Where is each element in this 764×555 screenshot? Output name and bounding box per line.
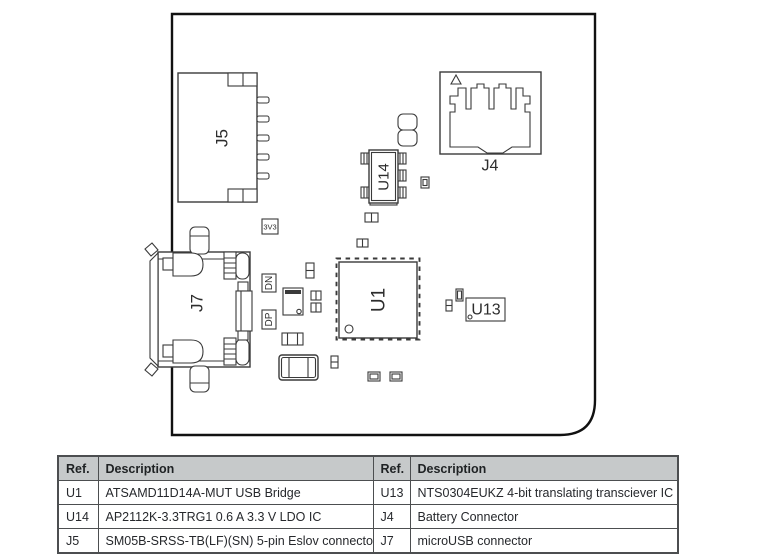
component-cap-pads xyxy=(398,114,417,146)
label-j7: J7 xyxy=(188,294,207,312)
table-row: U14 AP2112K-3.3TRG1 0.6 A 3.3 V LDO IC J… xyxy=(58,505,678,529)
label-j4: J4 xyxy=(482,158,499,175)
cell-desc: NTS0304EUKZ 4-bit translating transcieve… xyxy=(410,481,678,505)
j7-tab-top xyxy=(190,227,209,254)
j5-pin xyxy=(257,116,269,122)
header-desc-right: Description xyxy=(410,456,678,481)
j5-pin xyxy=(257,154,269,160)
pcb-diagram: J5 xyxy=(0,0,764,450)
header-desc-left: Description xyxy=(98,456,373,481)
net-label-dn: DN xyxy=(262,274,276,292)
j5-pin xyxy=(257,135,269,141)
header-ref-right: Ref. xyxy=(373,456,410,481)
label-j5: J5 xyxy=(213,129,232,147)
component-u1: U1 xyxy=(337,259,420,340)
cell-desc: ATSAMD11D14A-MUT USB Bridge xyxy=(98,481,373,505)
cell-ref: U1 xyxy=(58,481,98,505)
label-u14: U14 xyxy=(376,163,393,191)
cell-ref: J7 xyxy=(373,529,410,554)
cell-desc: microUSB connector xyxy=(410,529,678,554)
u1-pin1-mark xyxy=(345,325,353,333)
table-row: U1 ATSAMD11D14A-MUT USB Bridge U13 NTS03… xyxy=(58,481,678,505)
component-diode xyxy=(283,288,303,315)
cell-desc: SM05B-SRSS-TB(LF)(SN) 5-pin Eslov connec… xyxy=(98,529,373,554)
component-u13: U13 xyxy=(466,298,505,321)
label-dp: DP xyxy=(264,312,275,326)
cell-ref: U14 xyxy=(58,505,98,529)
reference-table: Ref. Description Ref. Description U1 ATS… xyxy=(57,455,679,554)
j5-pin xyxy=(257,173,269,179)
pcb-placement-page: J5 xyxy=(0,0,764,555)
net-label-dp: DP xyxy=(262,310,276,329)
cell-ref: J4 xyxy=(373,505,410,529)
table-header-row: Ref. Description Ref. Description xyxy=(58,456,678,481)
label-dn: DN xyxy=(264,276,275,290)
component-big-cap xyxy=(279,355,318,380)
j5-pin xyxy=(257,97,269,103)
component-j7: J7 xyxy=(145,227,252,392)
table-row: J5 SM05B-SRSS-TB(LF)(SN) 5-pin Eslov con… xyxy=(58,529,678,554)
label-u1: U1 xyxy=(369,288,390,312)
j7-flange xyxy=(150,253,158,366)
label-3v3: 3V3 xyxy=(263,222,276,231)
label-u13: U13 xyxy=(471,302,500,319)
component-j5: J5 xyxy=(178,73,269,202)
header-ref-left: Ref. xyxy=(58,456,98,481)
cell-desc: Battery Connector xyxy=(410,505,678,529)
j7-tab-bottom xyxy=(190,366,209,392)
cell-ref: U13 xyxy=(373,481,410,505)
cell-desc: AP2112K-3.3TRG1 0.6 A 3.3 V LDO IC xyxy=(98,505,373,529)
cell-ref: J5 xyxy=(58,529,98,554)
